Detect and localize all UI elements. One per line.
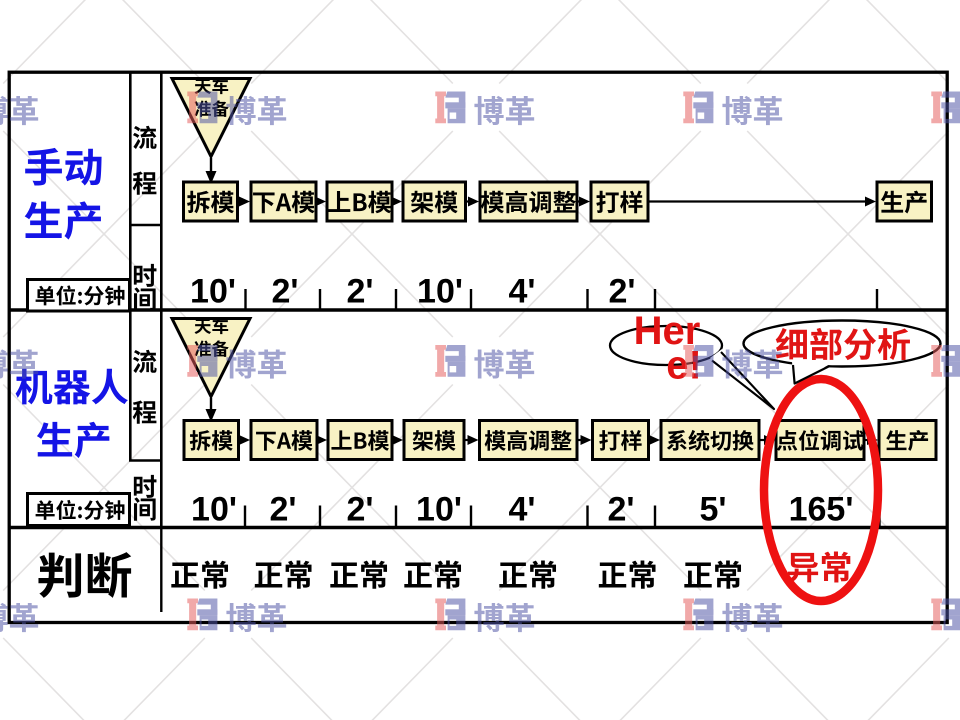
- svg-text:5': 5': [700, 491, 727, 529]
- svg-text:4': 4': [509, 273, 536, 311]
- svg-text:2': 2': [347, 491, 374, 529]
- svg-text:2': 2': [270, 491, 297, 529]
- svg-text:2': 2': [608, 491, 635, 529]
- svg-text:10': 10': [417, 273, 463, 311]
- svg-text:165': 165': [789, 491, 854, 529]
- svg-text:2': 2': [272, 273, 299, 311]
- svg-text:10': 10': [416, 491, 462, 529]
- svg-text:10': 10': [190, 273, 236, 311]
- svg-text:2': 2': [347, 273, 374, 311]
- svg-text:4': 4': [509, 491, 536, 529]
- svg-text:2': 2': [609, 273, 636, 311]
- svg-text:10': 10': [191, 491, 237, 529]
